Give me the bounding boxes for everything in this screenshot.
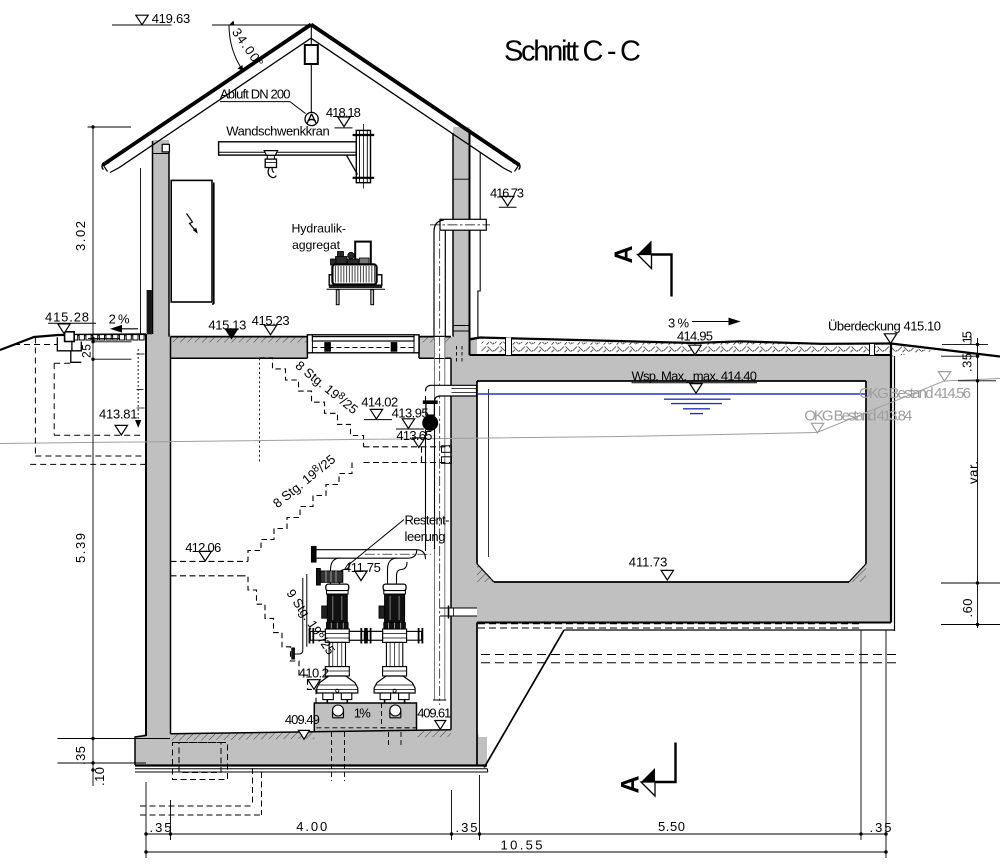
svg-text:.35: .35 (73, 746, 88, 765)
svg-text:2 %: 2 % (109, 312, 130, 327)
svg-text:413.81: 413.81 (99, 407, 138, 422)
svg-text:1 %: 1 % (354, 706, 371, 721)
svg-text:.10: .10 (92, 767, 107, 786)
svg-text:Wandschwenkkran: Wandschwenkkran (226, 124, 330, 139)
svg-text:416.73: 416.73 (490, 186, 524, 201)
svg-text:409.61: 409.61 (417, 706, 451, 721)
svg-text:25: 25 (80, 344, 94, 358)
svg-text:10.55: 10.55 (501, 838, 543, 853)
svg-text:OKG Bestand 413.84: OKG Bestand 413.84 (804, 408, 912, 425)
svg-text:414.95: 414.95 (677, 329, 713, 344)
svg-text:412.06: 412.06 (185, 540, 221, 555)
svg-text:3.02: 3.02 (73, 221, 88, 251)
svg-text:Schnitt C - C: Schnitt C - C (504, 36, 641, 68)
svg-text:418.18: 418.18 (326, 105, 361, 120)
svg-text:Restent-: Restent- (405, 513, 450, 528)
svg-text:5.50: 5.50 (658, 819, 685, 834)
svg-text:Abluft DN 200: Abluft DN 200 (220, 87, 291, 102)
svg-text:aggregat: aggregat (292, 238, 341, 252)
svg-text:.35: .35 (870, 820, 892, 835)
svg-text:419.63: 419.63 (152, 11, 191, 26)
svg-text:leerung: leerung (405, 529, 446, 544)
svg-text:Hydraulik-: Hydraulik- (292, 222, 347, 236)
svg-text:409.49: 409.49 (285, 712, 320, 727)
svg-text:A: A (610, 245, 638, 263)
svg-text:Überdeckung 415.10: Überdeckung 415.10 (828, 319, 941, 334)
svg-text:.35: .35 (150, 820, 172, 835)
svg-text:.35: .35 (960, 353, 975, 372)
svg-text:411.73: 411.73 (629, 555, 668, 570)
svg-text:411.75: 411.75 (344, 560, 381, 575)
svg-text:Wsp. Max._max. 414.40: Wsp. Max._max. 414.40 (632, 369, 758, 384)
svg-text:413.65: 413.65 (396, 428, 432, 443)
svg-text:A: A (617, 775, 645, 793)
svg-text:OKG Bestand 414.56: OKG Bestand 414.56 (859, 385, 971, 402)
svg-text:413.95: 413.95 (392, 406, 429, 421)
svg-text:.15: .15 (960, 331, 975, 345)
svg-text:var.: var. (966, 461, 981, 484)
svg-text:.60: .60 (960, 599, 975, 618)
svg-text:415.13: 415.13 (208, 318, 246, 333)
svg-text:4.00: 4.00 (296, 819, 327, 834)
svg-text:5.39: 5.39 (73, 533, 88, 563)
svg-text:410.2: 410.2 (299, 666, 329, 681)
svg-text:415.28: 415.28 (45, 309, 89, 324)
svg-text:.35: .35 (456, 820, 478, 835)
svg-text:415.23: 415.23 (252, 313, 290, 328)
